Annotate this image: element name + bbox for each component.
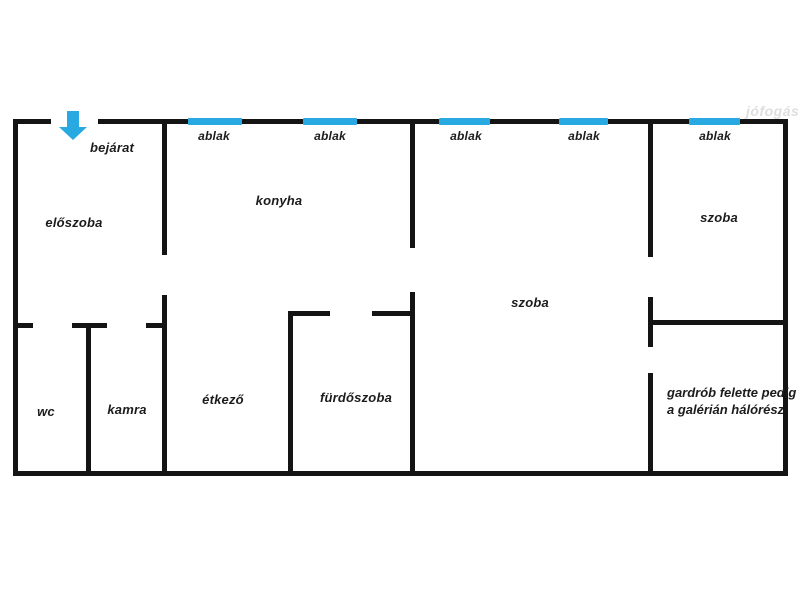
- watermark: jófogás: [746, 103, 799, 119]
- entrance-arrowhead-icon: [59, 127, 87, 140]
- room-label-furdoszoba: fürdőszoba: [320, 390, 392, 405]
- entrance-label: bejárat: [90, 140, 134, 155]
- window-bar-4: [559, 118, 608, 125]
- room-label-wc: wc: [37, 404, 55, 419]
- window-label-2: ablak: [314, 129, 346, 143]
- wall-szoba-gardrob: [648, 320, 788, 325]
- wall-furdoszoba-top-b: [372, 311, 415, 316]
- wall-wc-top-b: [72, 323, 107, 328]
- floor-plan: jófogás ablak ablak ablak ablak ablak be…: [0, 0, 800, 600]
- window-bar-3: [439, 118, 490, 125]
- room-label-kamra: kamra: [107, 402, 146, 417]
- gardrob-annotation-line2: a galérián hálórész: [667, 401, 796, 418]
- wall-szoba-right-lower: [648, 373, 653, 476]
- gardrob-annotation-line1: gardrób felette pedig: [667, 384, 796, 401]
- window-label-3: ablak: [450, 129, 482, 143]
- wall-szoba-right-upper: [648, 119, 653, 257]
- wall-kamra-top: [146, 323, 167, 328]
- wall-outer-left: [13, 119, 18, 476]
- window-label-1: ablak: [198, 129, 230, 143]
- room-label-etkezo: étkező: [202, 392, 244, 407]
- room-label-szoba-right: szoba: [700, 210, 738, 225]
- wall-konyha-szoba-upper: [410, 119, 415, 248]
- room-label-konyha: konyha: [256, 193, 303, 208]
- window-label-4: ablak: [568, 129, 600, 143]
- wall-konyha-szoba-lower: [410, 292, 415, 476]
- wall-eloszoba-right-upper: [162, 119, 167, 255]
- wall-wc-kamra: [86, 323, 91, 476]
- gardrob-annotation: gardrób felette pedig a galérián hálórés…: [667, 384, 796, 418]
- wall-wc-top-a: [13, 323, 33, 328]
- wall-outer-bottom: [13, 471, 788, 476]
- wall-furdoszoba-top-a: [288, 311, 330, 316]
- window-bar-1: [188, 118, 242, 125]
- wall-outer-right: [783, 119, 788, 476]
- room-label-szoba-center: szoba: [511, 295, 549, 310]
- window-label-5: ablak: [699, 129, 731, 143]
- wall-outer-top-left: [13, 119, 51, 124]
- wall-etkezo-furdoszoba: [288, 311, 293, 476]
- window-bar-2: [303, 118, 357, 125]
- room-label-eloszoba: előszoba: [45, 215, 102, 230]
- entrance-arrow-icon: [67, 111, 79, 128]
- window-bar-5: [689, 118, 740, 125]
